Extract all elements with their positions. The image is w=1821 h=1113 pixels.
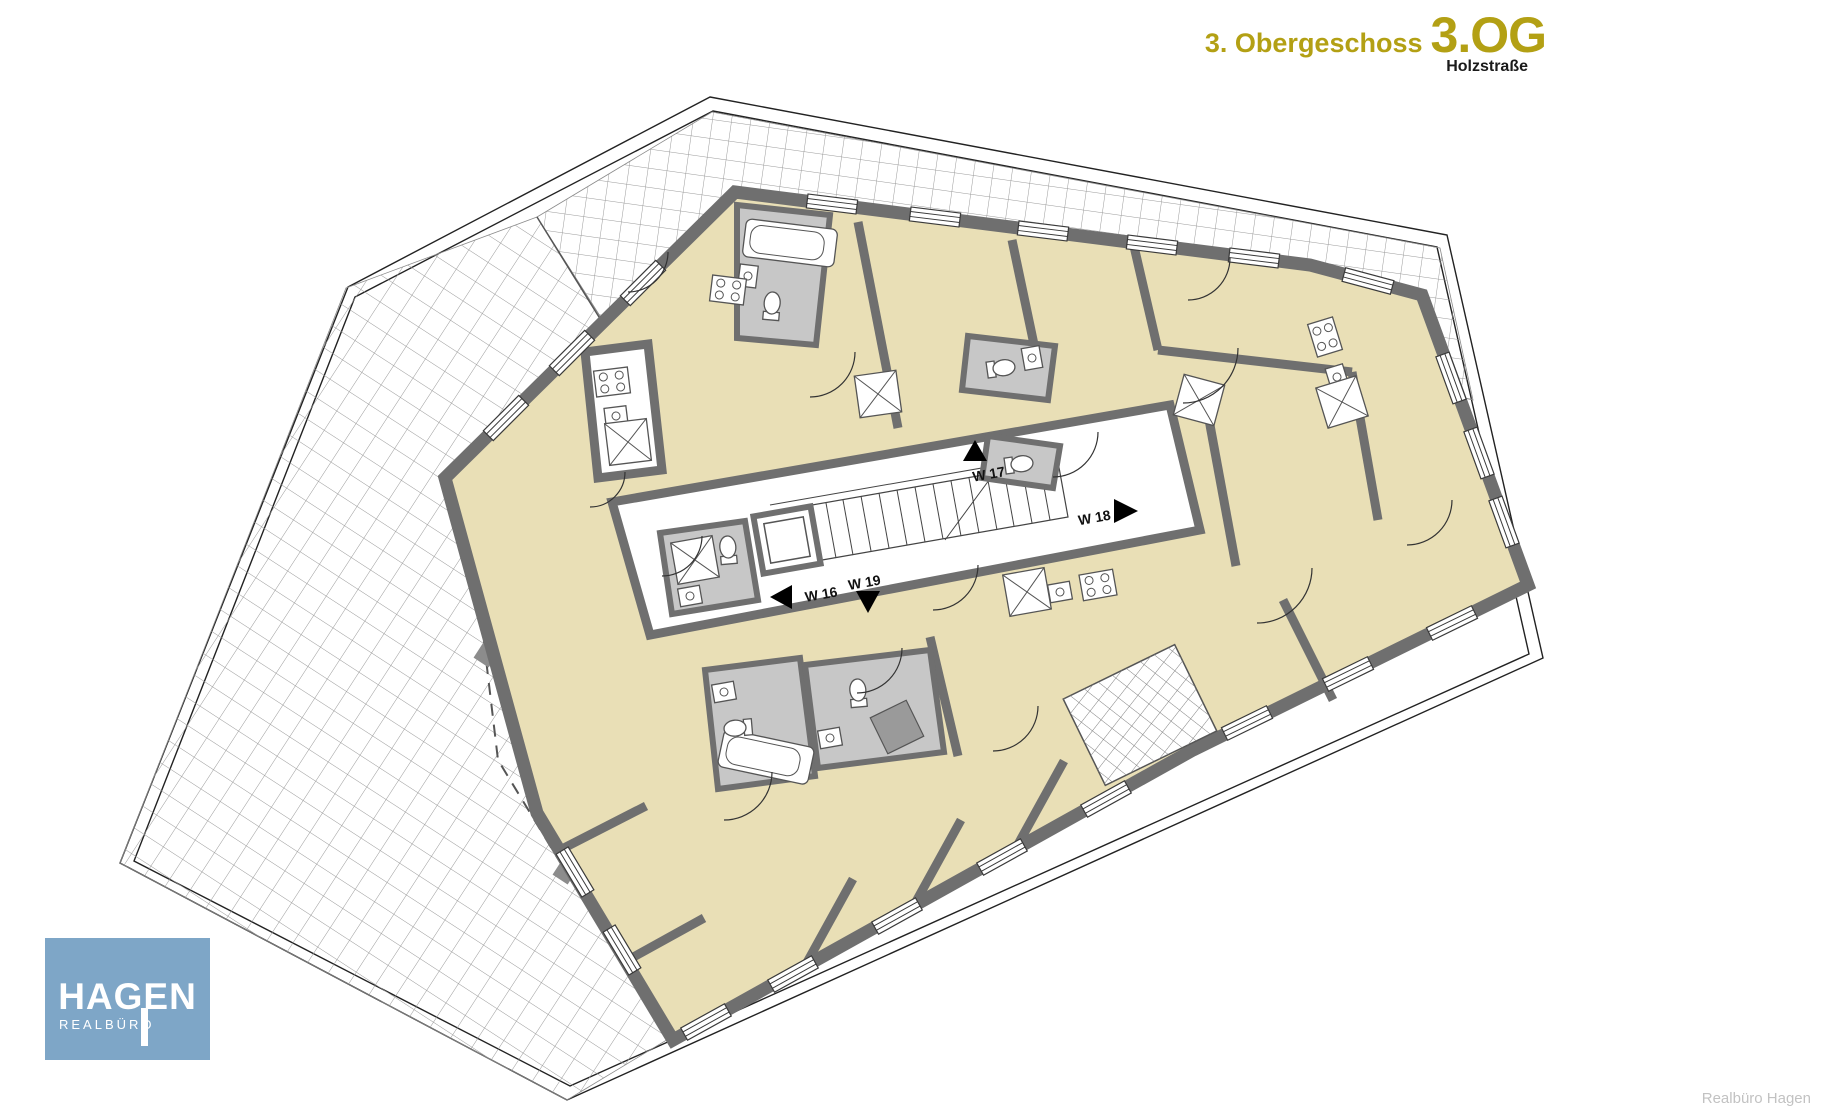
stove-icon	[1079, 569, 1117, 601]
logo-subtitle-text: REALBÜRO	[45, 1017, 210, 1032]
logo-g-tail	[141, 1008, 148, 1046]
sink-icon	[818, 727, 843, 749]
shaft-icon	[605, 419, 652, 466]
building-outline	[445, 192, 1528, 1040]
sink-icon	[1021, 346, 1043, 371]
shower-icon	[671, 536, 720, 585]
title-block: 3. Obergeschoss 3.OG Holzstraße	[1205, 6, 1546, 76]
floor-name: 3. Obergeschoss	[1205, 28, 1423, 59]
company-logo: HAGEN REALBÜRO	[45, 938, 210, 1060]
page: W 16 W 17 W 18 W 19 3. Obergeschoss 3.OG…	[0, 0, 1821, 1113]
elevator	[753, 506, 820, 573]
sink-icon	[712, 681, 737, 703]
credit-text: Realbüro Hagen	[1702, 1090, 1811, 1107]
building-footprint	[445, 192, 1528, 1040]
floor-code: 3.OG	[1431, 6, 1546, 64]
sink-icon	[678, 585, 703, 607]
street-name: Holzstraße	[1205, 58, 1546, 76]
floor-plan-canvas: W 16 W 17 W 18 W 19	[0, 0, 1821, 1113]
sink-icon	[1048, 581, 1073, 603]
logo-brand-text: HAGEN	[45, 978, 210, 1015]
stove-icon	[594, 367, 631, 397]
shaft-icon	[1003, 568, 1052, 617]
stove-icon	[710, 275, 747, 305]
shaft-icon	[854, 370, 901, 417]
